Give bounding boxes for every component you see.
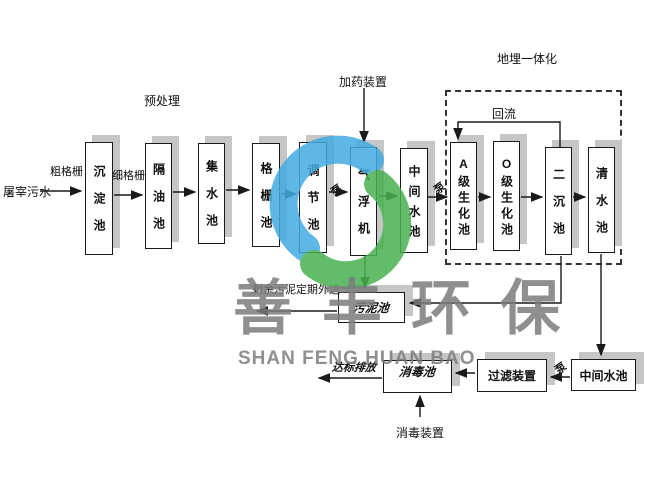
box-label: 污泥池 bbox=[353, 299, 391, 316]
box-intermediate-tank-2: 中间水池 bbox=[571, 359, 636, 391]
label-pretreatment: 预处理 bbox=[144, 92, 180, 109]
label-discharge: 达标排放 bbox=[331, 359, 377, 375]
box-label: 气浮机 bbox=[358, 154, 370, 249]
box-label: 二沉池 bbox=[553, 154, 565, 249]
label-buried-integration: 地埋一体化 bbox=[497, 50, 557, 67]
box-label: 过滤装置 bbox=[488, 367, 536, 384]
box-label: 中间水池 bbox=[579, 367, 627, 384]
label-disinfection-device: 消毒装置 bbox=[396, 424, 444, 441]
box-clear-water-tank: 清水池 bbox=[588, 147, 615, 253]
box-oil-separation-tank: 隔油池 bbox=[145, 143, 172, 249]
label-sludge-removal: 剩余污泥定期外运 bbox=[252, 281, 340, 297]
box-filter-device: 过滤装置 bbox=[477, 359, 547, 392]
box-label: 清水池 bbox=[596, 153, 608, 248]
box-regulation-tank: 调节池 bbox=[299, 142, 327, 253]
box-sludge-tank: 污泥池 bbox=[338, 292, 405, 323]
box-a-level-biochemical-tank: A级生化池 bbox=[450, 142, 477, 250]
box-label: 隔油池 bbox=[153, 149, 165, 244]
box-collection-tank: 集水池 bbox=[198, 143, 225, 244]
box-screen-tank: 格栅池 bbox=[252, 143, 280, 247]
box-label: A级生化池 bbox=[458, 153, 470, 239]
box-sedimentation-tank: 沉淀池 bbox=[85, 142, 113, 255]
flow-diagram: 沉淀池 隔油池 集水池 格栅池 调节池 气浮机 中间水池 A级生化池 O级生化池… bbox=[0, 0, 650, 500]
box-secondary-sedimentation-tank: 二沉池 bbox=[545, 147, 572, 255]
label-influent: 屠宰污水 bbox=[3, 183, 51, 200]
box-o-level-biochemical-tank: O级生化池 bbox=[493, 141, 520, 251]
box-label: 调节池 bbox=[307, 150, 319, 245]
box-disinfection-tank: 消毒池 bbox=[383, 360, 452, 393]
label-coarse-screen: 粗格栅 bbox=[50, 163, 83, 179]
box-label: O级生化池 bbox=[501, 153, 513, 239]
box-label: 消毒池 bbox=[399, 363, 437, 380]
box-air-flotation-machine: 气浮机 bbox=[350, 147, 377, 256]
label-fine-screen: 细格栅 bbox=[112, 167, 145, 183]
box-label: 格栅池 bbox=[260, 148, 272, 243]
box-label: 沉淀池 bbox=[93, 151, 105, 246]
label-reflux: 回流 bbox=[492, 105, 516, 122]
box-label: 中间水池 bbox=[408, 157, 420, 245]
label-dosing-device: 加药装置 bbox=[339, 73, 387, 90]
box-intermediate-tank: 中间水池 bbox=[400, 148, 428, 253]
box-label: 集水池 bbox=[206, 146, 218, 241]
